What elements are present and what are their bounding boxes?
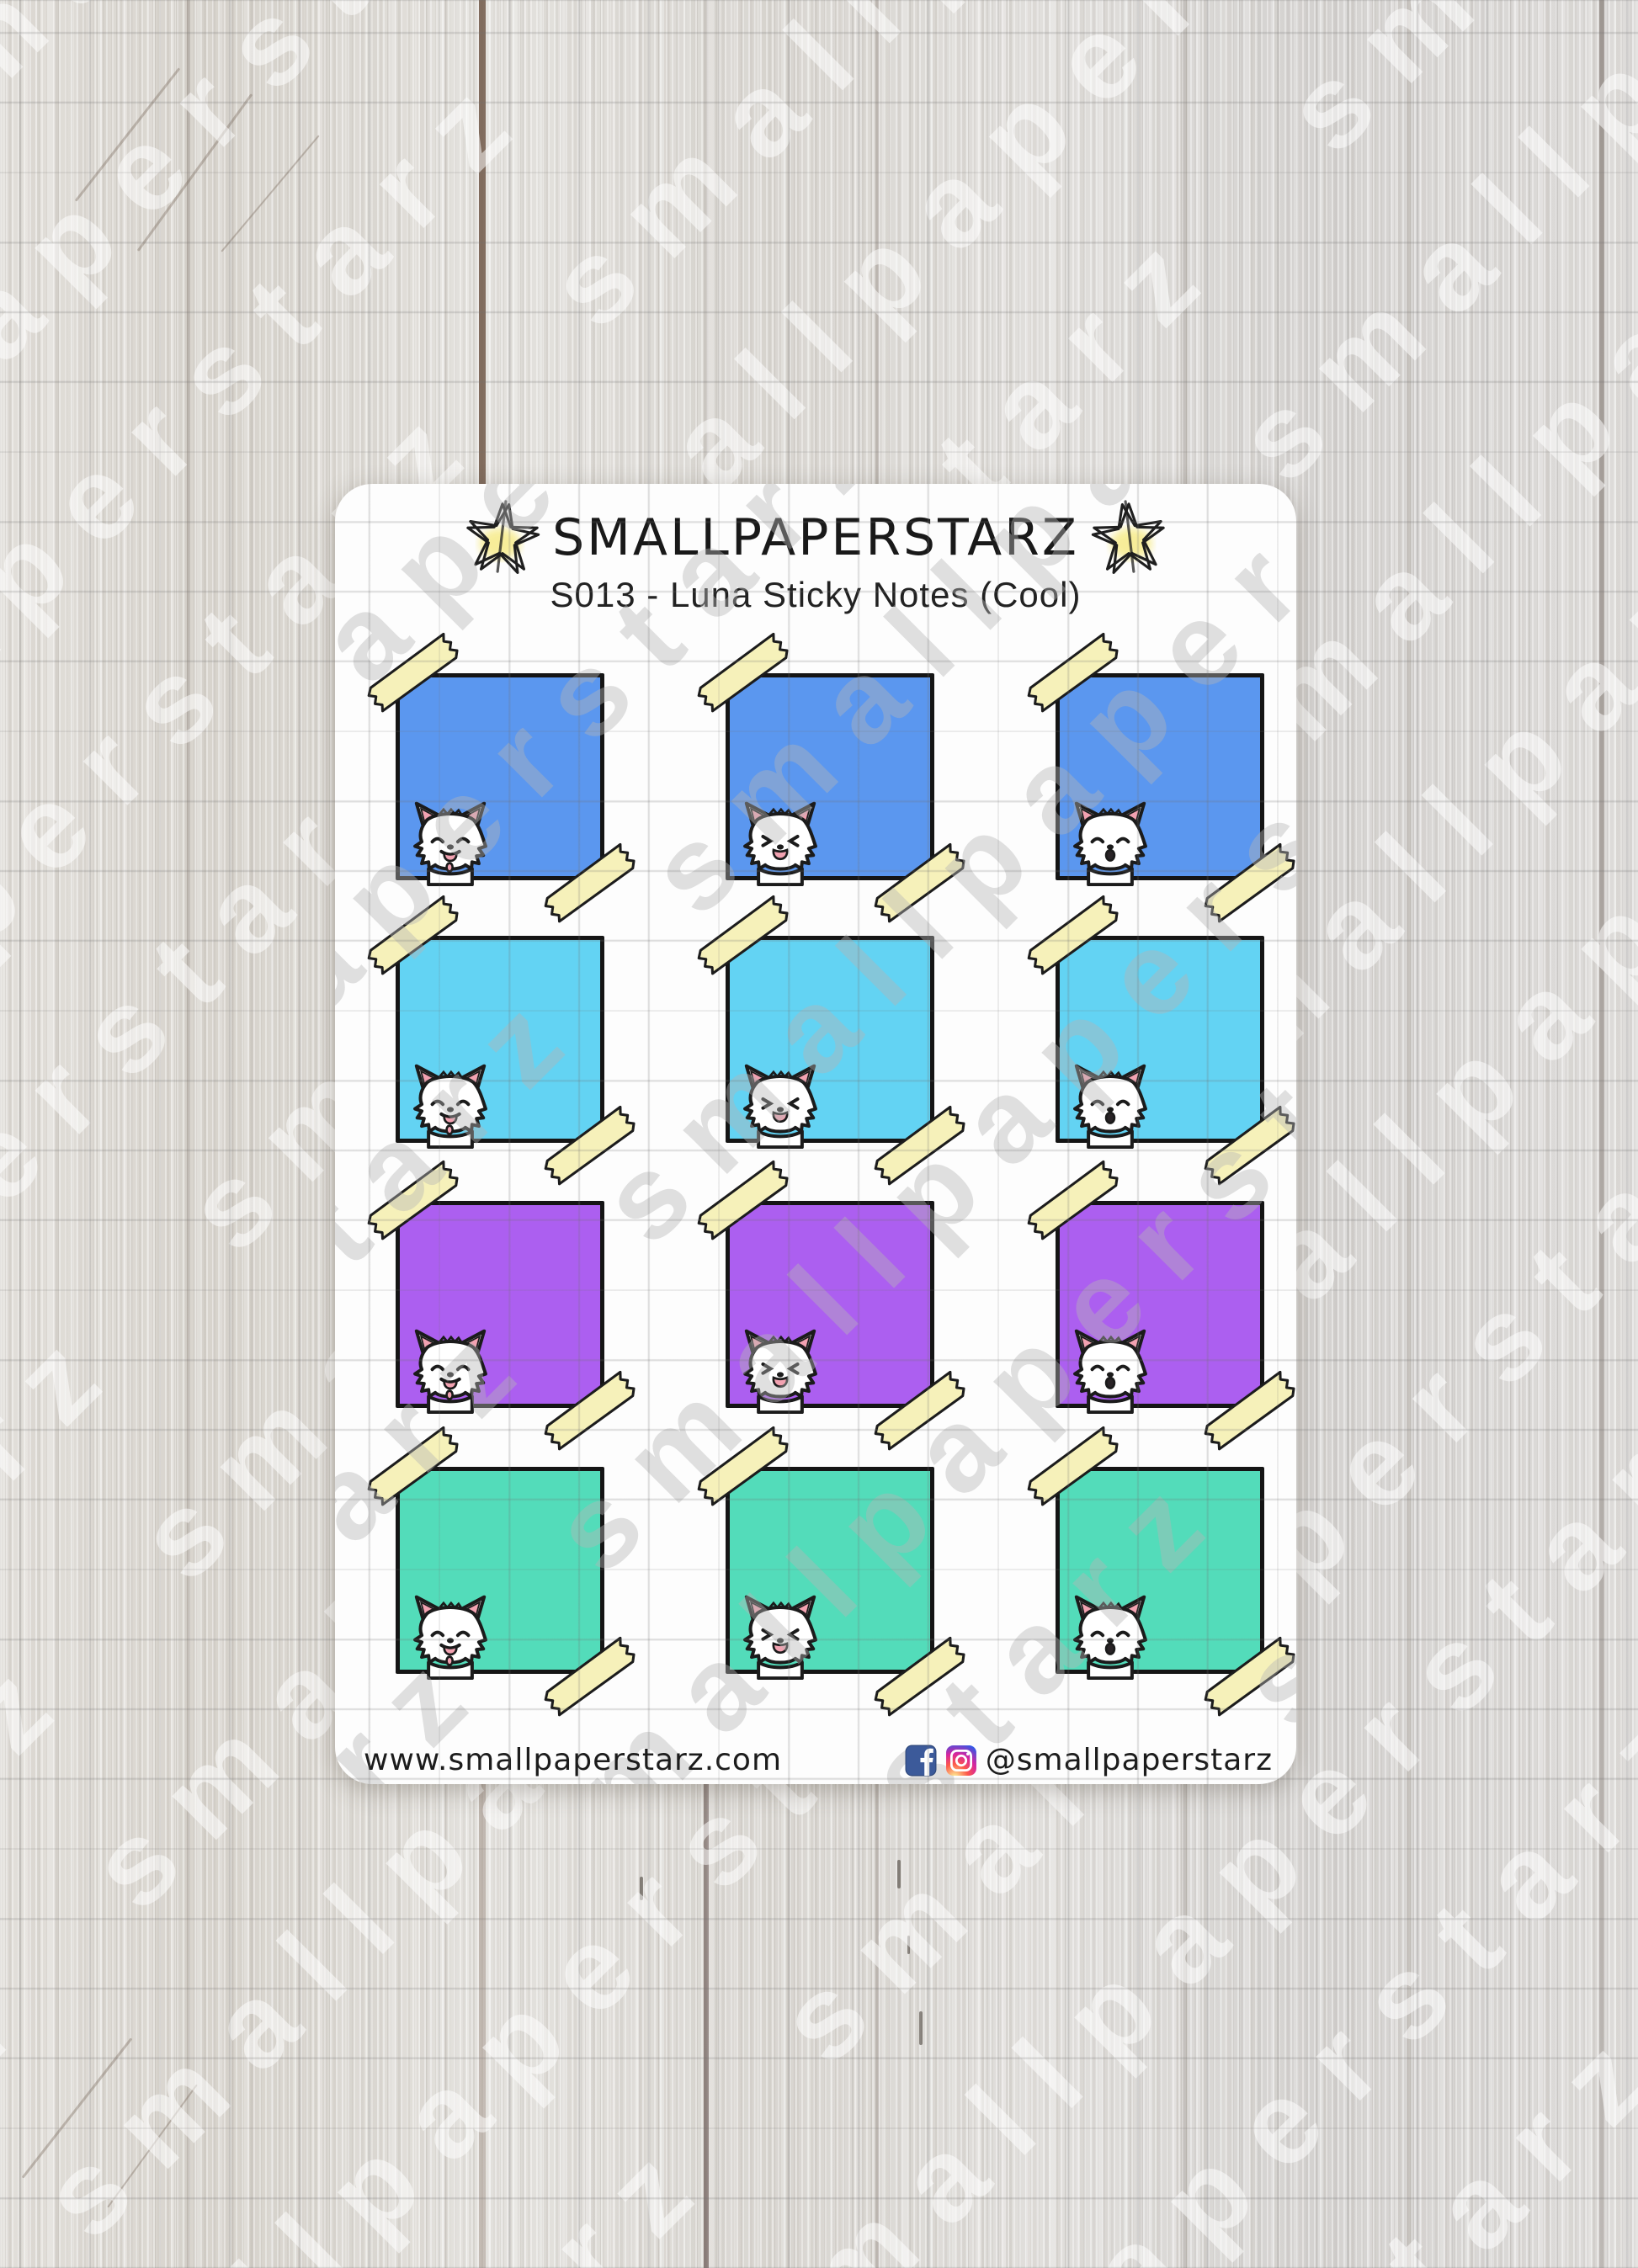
sticky-note-blue-3 (1056, 673, 1264, 880)
washi-tape-icon (1198, 1632, 1296, 1722)
washi-tape-icon (538, 1366, 641, 1456)
washi-tape-icon (1021, 1421, 1125, 1511)
washi-tape-icon (691, 1421, 795, 1511)
washi-tape-icon (691, 890, 795, 980)
social-handle: @smallpaperstarz (986, 1743, 1273, 1777)
wood-plank-seam (187, 0, 190, 2268)
luna-cat-happy-whistle (1061, 1588, 1159, 1680)
washi-tape-icon (691, 628, 795, 718)
washi-tape-icon (1198, 838, 1296, 928)
luna-cat-happy-whistle (1061, 794, 1159, 886)
washi-tape-icon (868, 1366, 971, 1456)
luna-cat-happy-tongue-drool (402, 1588, 499, 1680)
sticky-note-blue-2 (726, 673, 934, 880)
sticky-notes-grid (335, 484, 1296, 1784)
luna-cat-happy-whistle (1061, 1322, 1159, 1414)
washi-tape-icon (868, 1101, 971, 1191)
washi-tape-icon (1198, 1366, 1296, 1456)
sticky-note-cyan-2 (726, 936, 934, 1143)
washi-tape-icon (868, 838, 971, 928)
washi-tape-icon (538, 1632, 641, 1722)
wood-chip (640, 1877, 643, 1900)
luna-cat-happy-tongue-drool (402, 1322, 499, 1414)
washi-tape-icon (538, 838, 641, 928)
wood-plank-seam (1407, 0, 1411, 2268)
wood-plank-seam (1599, 0, 1604, 2268)
sticky-note-blue-1 (396, 673, 604, 880)
washi-tape-icon (1021, 628, 1125, 718)
washi-tape-icon (868, 1632, 971, 1722)
wood-scratch (75, 67, 180, 201)
washi-tape-icon (691, 1155, 795, 1246)
social-row: @smallpaperstarz (905, 1743, 1273, 1777)
sticky-note-mint-3 (1056, 1467, 1264, 1674)
washi-tape-icon (361, 890, 465, 980)
luna-cat-squint-tongue-out (731, 1588, 829, 1680)
luna-cat-squint-tongue-out (731, 794, 829, 886)
wood-chip (897, 1860, 901, 1888)
wood-chip (907, 1936, 910, 1954)
product-photo: smallpaperstarz smallpaperstarz smallpap… (0, 0, 1638, 2268)
washi-tape-icon (1021, 1155, 1125, 1246)
washi-tape-icon (1198, 1101, 1296, 1191)
luna-cat-squint-tongue-out (731, 1057, 829, 1149)
washi-tape-icon (1021, 890, 1125, 980)
washi-tape-icon (361, 1155, 465, 1246)
washi-tape-icon (361, 628, 465, 718)
luna-cat-happy-whistle (1061, 1057, 1159, 1149)
sticky-note-cyan-1 (396, 936, 604, 1143)
wood-scratch (137, 93, 253, 252)
sticky-note-mint-2 (726, 1467, 934, 1674)
facebook-icon (905, 1745, 937, 1777)
wood-scratch (107, 2085, 197, 2208)
washi-tape-icon (361, 1421, 465, 1511)
sticky-note-purple-1 (396, 1201, 604, 1408)
washi-tape-icon (538, 1101, 641, 1191)
wood-chip (919, 2011, 923, 2045)
sticker-sheet: SMALLPAPERSTARZ S013 - Luna Sticky Notes… (335, 484, 1296, 1784)
sticky-note-purple-2 (726, 1201, 934, 1408)
sticky-note-purple-3 (1056, 1201, 1264, 1408)
luna-cat-happy-tongue-drool (402, 1057, 499, 1149)
sticky-note-mint-1 (396, 1467, 604, 1674)
luna-cat-squint-tongue-out (731, 1322, 829, 1414)
luna-cat-happy-tongue-drool (402, 794, 499, 886)
wood-scratch (22, 2037, 133, 2178)
wood-scratch (221, 135, 319, 252)
instagram-icon (945, 1745, 977, 1777)
website-url: www.smallpaperstarz.com (364, 1743, 782, 1777)
sticky-note-cyan-3 (1056, 936, 1264, 1143)
